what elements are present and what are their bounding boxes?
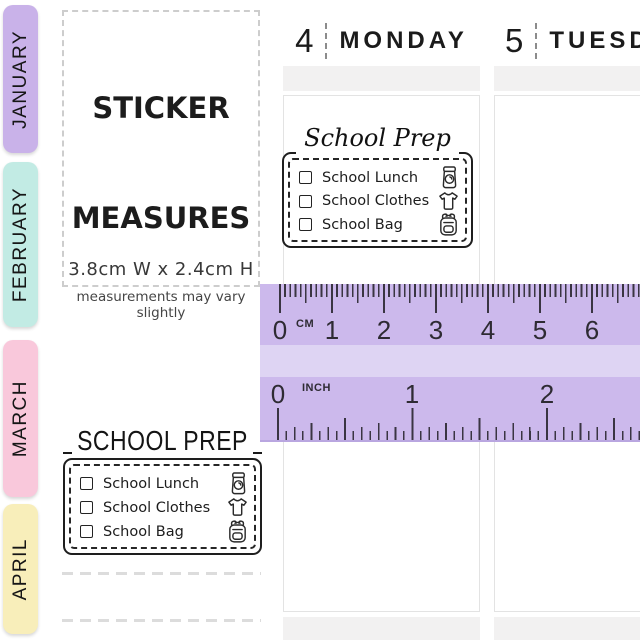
- school-prep-sticker-title-script: School Prep: [282, 120, 473, 156]
- sticker-item-label: School Lunch: [103, 476, 199, 492]
- month-tab-march[interactable]: MARCH: [3, 340, 38, 497]
- cm-unit-label: CM: [296, 318, 314, 330]
- column-header-strip: [494, 66, 640, 91]
- cm-mark: 0: [273, 315, 287, 346]
- column-footer-strip: [283, 617, 480, 640]
- cm-mark: 2: [377, 315, 391, 346]
- inch-ticks: [277, 408, 640, 440]
- month-tab-label: MARCH: [10, 380, 32, 457]
- measure-disclaimer: measurements may vary slightly: [62, 289, 260, 321]
- sticker-item-label: School Clothes: [103, 500, 210, 516]
- sticker-item-label: School Lunch: [322, 170, 418, 186]
- inch-mark: 1: [405, 379, 419, 410]
- card-title-line2: MEASURES: [64, 204, 258, 232]
- school-prep-sticker-title-caps: SCHOOL PREP: [63, 426, 262, 457]
- checkbox[interactable]: [299, 171, 312, 184]
- sticker-item-label: School Bag: [322, 217, 403, 233]
- sticker-dimensions: 3.8cm W x 2.4cm H: [64, 259, 258, 280]
- cm-mark: 1: [325, 315, 339, 346]
- header-dashed-divider: [535, 23, 537, 59]
- sticker-item-label: School Clothes: [322, 193, 429, 209]
- kiss-cut-line: [62, 572, 261, 575]
- inch-mark: 2: [540, 379, 554, 410]
- day-header-tuesday: 5 TUESDAY: [494, 21, 640, 61]
- lunch-bag-icon: [228, 471, 249, 496]
- column-header-strip: [283, 66, 480, 91]
- column-footer-strip: [494, 617, 640, 640]
- sticker-measures-card: STICKER MEASURES 3.8cm W x 2.4cm H: [62, 10, 260, 287]
- header-dashed-divider: [325, 23, 327, 59]
- inch-mark: 0: [271, 379, 285, 410]
- day-number: 4: [295, 22, 313, 60]
- sticker-row-school-clothes: School Clothes: [80, 496, 249, 519]
- sticker-row-school-lunch: School Lunch: [80, 471, 249, 496]
- checkbox[interactable]: [80, 501, 93, 514]
- sticker-item-label: School Bag: [103, 524, 184, 540]
- month-tab-january[interactable]: JANUARY: [3, 5, 38, 153]
- planner-sticker-product-image: JANUARY FEBRUARY MARCH APRIL STICKER MEA…: [0, 0, 640, 640]
- checkbox[interactable]: [299, 195, 312, 208]
- checkbox[interactable]: [80, 525, 93, 538]
- backpack-icon: [226, 519, 249, 544]
- day-number: 5: [505, 22, 523, 60]
- month-tab-april[interactable]: APRIL: [3, 504, 38, 634]
- sticker-row-school-clothes: School Clothes: [299, 190, 460, 212]
- kiss-cut-line: [62, 619, 261, 622]
- sticker-row-school-bag: School Bag: [299, 212, 460, 237]
- cm-mark: 4: [481, 315, 495, 346]
- month-tab-february[interactable]: FEBRUARY: [3, 162, 38, 327]
- backpack-icon: [437, 212, 460, 237]
- tshirt-icon: [226, 497, 249, 518]
- month-tab-label: APRIL: [10, 538, 32, 600]
- school-prep-sticker: School Lunch School Clothes School Bag: [63, 458, 262, 555]
- day-name: TUESDAY: [549, 27, 640, 55]
- checkbox[interactable]: [299, 218, 312, 231]
- cm-mark: 5: [533, 315, 547, 346]
- sticker-row-school-bag: School Bag: [80, 519, 249, 544]
- month-tab-label: JANUARY: [10, 30, 32, 129]
- card-title-line1: STICKER: [64, 94, 258, 122]
- school-prep-sticker: School Lunch School Clothes School Bag: [282, 152, 473, 248]
- lunch-bag-icon: [439, 165, 460, 190]
- inch-unit-label: INCH: [302, 382, 331, 394]
- cm-mark: 3: [429, 315, 443, 346]
- day-name: MONDAY: [339, 27, 467, 55]
- cm-mark: 6: [585, 315, 599, 346]
- tshirt-icon: [437, 191, 460, 212]
- day-header-monday: 4 MONDAY: [283, 21, 480, 61]
- sticker-row-school-lunch: School Lunch: [299, 165, 460, 190]
- month-tab-label: FEBRUARY: [10, 187, 32, 302]
- ruler-middle-band: [260, 345, 640, 377]
- cm-ticks: [279, 284, 640, 313]
- checkbox[interactable]: [80, 477, 93, 490]
- cm-inch-ruler: 0 1 2 3 4 5 6 CM 0 1 2 INCH: [260, 284, 640, 442]
